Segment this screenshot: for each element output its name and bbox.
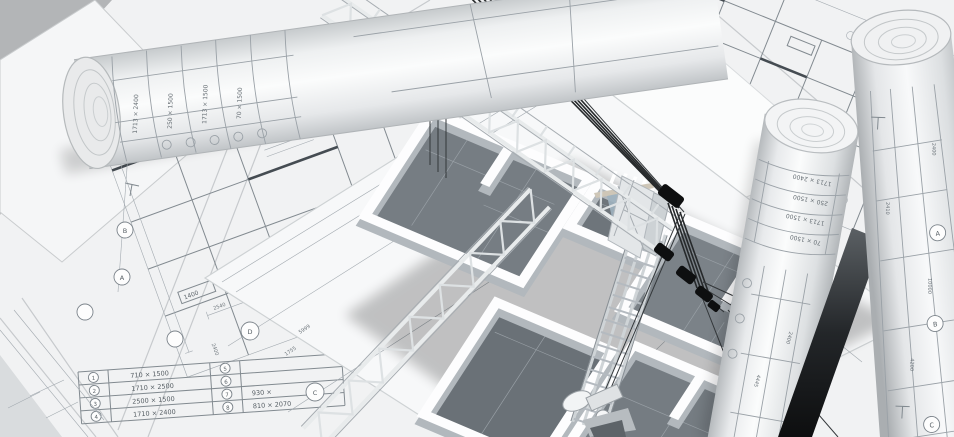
grid-bubble: A bbox=[120, 274, 125, 282]
svg-text:70 × 1500: 70 × 1500 bbox=[236, 87, 244, 119]
svg-text:10000: 10000 bbox=[926, 278, 932, 294]
svg-text:250 × 1500: 250 × 1500 bbox=[167, 93, 175, 129]
svg-text:2400: 2400 bbox=[930, 143, 936, 156]
grid-bubble: D bbox=[247, 328, 252, 336]
scene-canvas: 1400 2540 1710 3000 2400 C B A 1 2 3 4 bbox=[0, 0, 954, 437]
svg-text:2410: 2410 bbox=[884, 202, 890, 215]
blueprint-scene: 1400 2540 1710 3000 2400 C B A 1 2 3 4 bbox=[0, 0, 954, 437]
svg-text:1: 1 bbox=[92, 376, 96, 382]
svg-text:1713 × 2400: 1713 × 2400 bbox=[132, 94, 140, 134]
grid-bubble: C bbox=[313, 389, 318, 397]
grid-bubble: B bbox=[933, 320, 938, 328]
svg-text:1713 × 1500: 1713 × 1500 bbox=[201, 84, 209, 124]
svg-text:2: 2 bbox=[92, 389, 96, 395]
svg-text:4200: 4200 bbox=[908, 358, 914, 371]
grid-bubble: B bbox=[123, 227, 127, 235]
table-cell: 930 × bbox=[252, 388, 272, 397]
